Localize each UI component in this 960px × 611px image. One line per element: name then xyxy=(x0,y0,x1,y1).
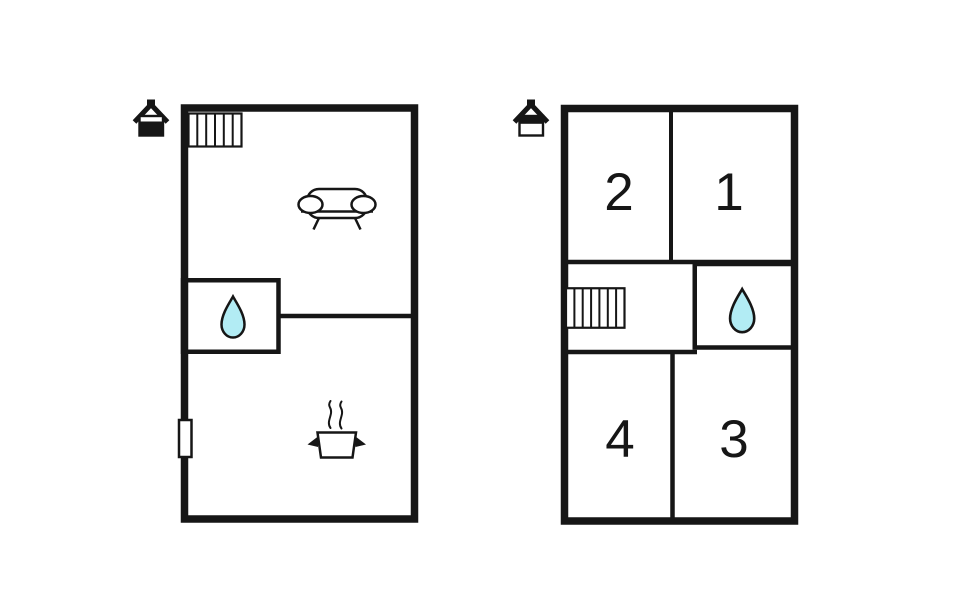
pot-body xyxy=(318,433,357,458)
upper-level-fill xyxy=(519,115,545,124)
door-opening xyxy=(179,420,192,457)
steam-line xyxy=(340,402,342,429)
floor-plan-canvas: 2 1 4 3 xyxy=(0,0,960,611)
steam-line xyxy=(329,401,331,428)
pot-handle-left xyxy=(308,437,319,448)
steaming-pot-icon xyxy=(308,401,367,458)
sofa-legs xyxy=(314,218,361,230)
sofa-icon xyxy=(299,189,376,230)
staircase-icon xyxy=(189,114,242,147)
house-ground-floor-icon xyxy=(135,100,168,137)
sofa-armrest-left xyxy=(299,196,323,213)
upper-floor-plan: 2 1 4 3 xyxy=(562,109,796,522)
water-drop-icon xyxy=(222,297,245,338)
room-number-4: 4 xyxy=(605,410,634,469)
ground-level-fill xyxy=(139,122,165,137)
staircase-icon xyxy=(566,288,625,328)
room-number-1: 1 xyxy=(714,163,743,222)
ground-floor-plan xyxy=(179,108,415,519)
floor-plan-drawing: 2 1 4 3 xyxy=(0,0,960,611)
water-drop-icon xyxy=(730,289,754,332)
pot-handle-right xyxy=(356,437,367,448)
room-number-2: 2 xyxy=(604,163,633,222)
sofa-armrest-right xyxy=(352,196,376,213)
room-number-3: 3 xyxy=(719,410,748,469)
house-upper-floor-icon xyxy=(515,100,548,136)
outer-wall xyxy=(185,108,415,519)
